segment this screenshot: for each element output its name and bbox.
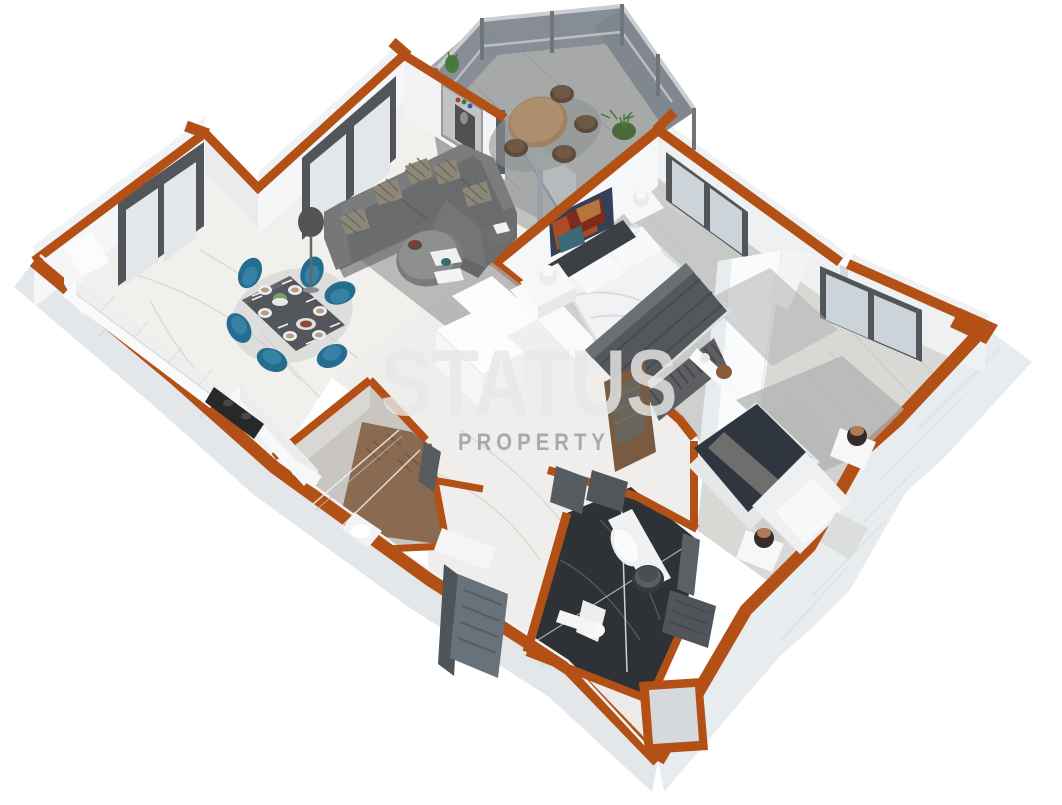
svg-text:PROPERTY: PROPERTY — [458, 429, 610, 456]
svg-text:STATUS: STATUS — [381, 330, 678, 435]
